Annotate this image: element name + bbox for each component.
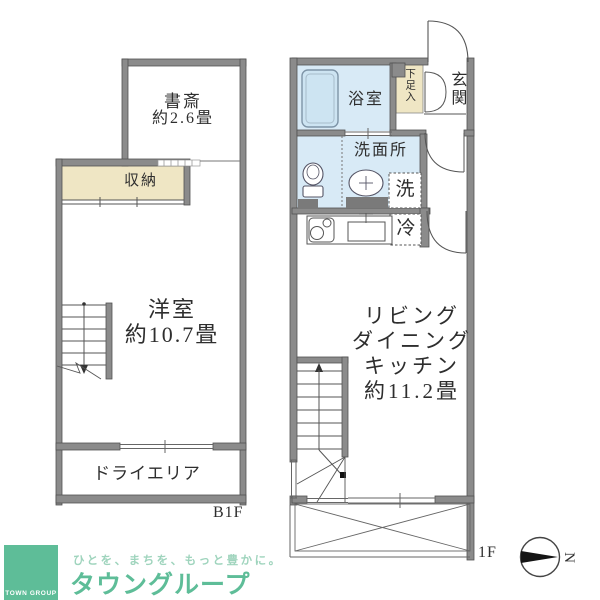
entrance-door-arc [428,21,468,62]
storage-label: 収納 [124,173,158,190]
western-room-label: 洋室 [148,297,196,322]
washroom-label: 洗面所 [354,142,408,160]
b1f-window [120,440,213,453]
f1-floor-label: 1F [478,544,497,562]
ldk-label: リビング ダイニング キッチン 約11.2畳 [352,304,472,404]
kitchen-counter [307,213,392,244]
study-name-label: 書斎 [164,92,202,112]
study-size-label: 約2.6畳 [152,110,214,128]
compass-icon [521,538,560,577]
fridge-label: 冷 [396,218,415,240]
bathroom-label: 浴室 [348,91,384,109]
western-room-size: 約10.7畳 [125,322,220,347]
ldk-window [307,493,435,508]
bathtub-icon [302,70,338,127]
entrance-label: 玄関 [447,71,465,107]
washbasin-icon [349,170,383,196]
north-label: N [560,552,577,563]
study-step-hatch [158,160,240,166]
washer-label: 洗 [395,179,414,201]
hall-door-arc [425,133,464,172]
washstand-counter [346,197,388,208]
town-group-logo: TOWN GROUP [4,545,58,600]
stairs-1f [297,363,346,502]
b1f-floor-label: B1F [213,504,244,522]
logo-text: TOWN GROUP [5,590,56,597]
brand-company-name: タウングループ [70,565,251,600]
toilet-icon [303,163,323,197]
floorplan-page: 書斎 約2.6畳 収納 洋室 約10.7畳 ドライエリア B1F 浴室 下足入 … [0,0,600,600]
toilet-counter [298,199,318,209]
stairs-b1f [57,302,106,379]
ldk-line-2: ダイニング [352,329,472,354]
balcony [290,504,470,557]
floorplan-drawing [0,0,600,600]
ldk-line-3: キッチン [352,354,472,379]
ldk-size: 約11.2畳 [352,379,472,404]
ldk-door-arc [427,211,466,253]
dry-area-label: ドライエリア [93,464,201,484]
f1-left-window [290,460,297,498]
ldk-line-1: リビング [352,304,472,329]
shoe-cabinet-label: 下足入 [403,68,415,103]
kitchen-sink-icon [348,222,385,241]
